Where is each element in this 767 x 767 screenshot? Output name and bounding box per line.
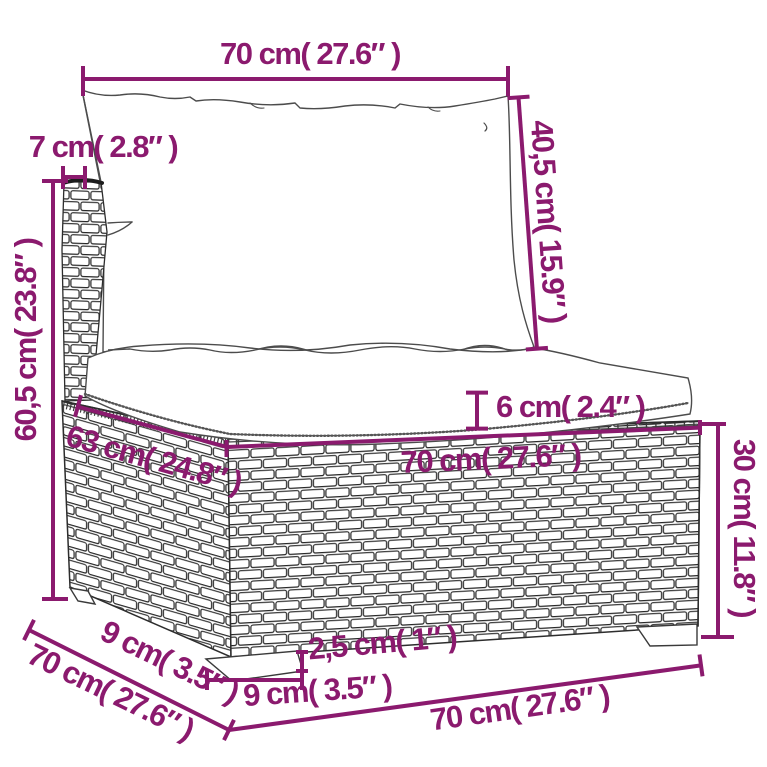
svg-text:7 cm( 2.8″ ): 7 cm( 2.8″ ) [29, 129, 178, 164]
svg-text:60,5 cm( 23.8″ ): 60,5 cm( 23.8″ ) [8, 238, 43, 441]
svg-text:70 cm( 27.6″ ): 70 cm( 27.6″ ) [220, 36, 400, 71]
svg-text:30 cm( 11.8″ ): 30 cm( 11.8″ ) [727, 439, 762, 617]
svg-text:6 cm( 2.4″ ): 6 cm( 2.4″ ) [496, 389, 645, 424]
